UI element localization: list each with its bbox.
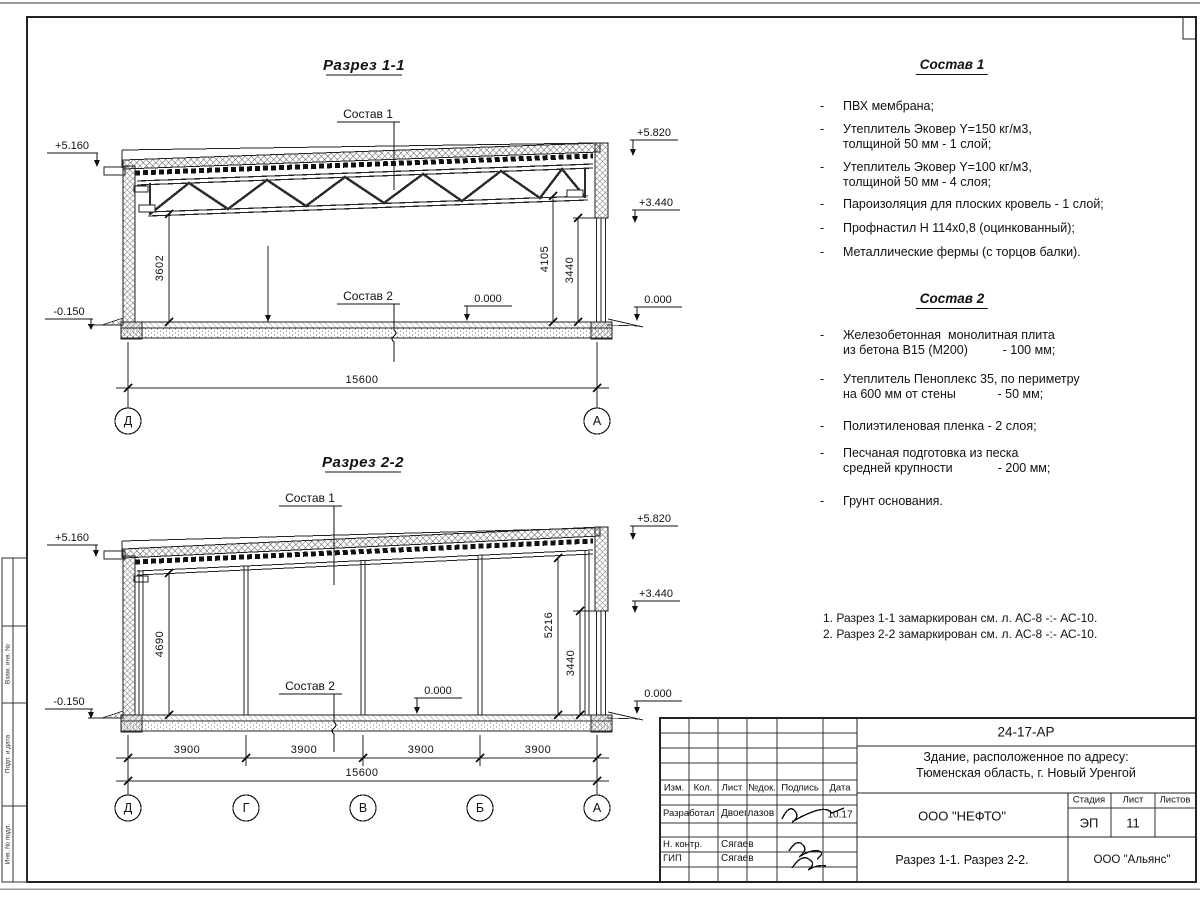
tb-subject: Разрез 1-1. Разрез 2-2. <box>895 853 1028 867</box>
section2-sostav1-label: Состав 1 <box>285 491 335 505</box>
section1-sostav2-label: Состав 2 <box>343 289 393 303</box>
tb-header-ndok: №док. <box>748 783 776 794</box>
tb-header-kol: Кол. <box>694 783 713 794</box>
sostav1-heading: Состав 1 <box>916 57 988 75</box>
dim-s2-span-1: 3900 <box>174 744 200 756</box>
dim-s2-opening-height: 3440 <box>565 650 577 676</box>
dim-s2-span-3: 3900 <box>408 744 434 756</box>
tb-doc-code: 24-17-АР <box>997 725 1054 740</box>
dim-s2-span-2: 3900 <box>291 744 317 756</box>
tb-role-gip: ГИП <box>663 853 682 864</box>
tb-sheets-label: Листов <box>1160 795 1191 806</box>
elev-s2-left-bottom: -0.150 <box>53 696 84 708</box>
elev-s1-left-bottom: -0.150 <box>53 306 84 318</box>
tb-header-podpis: Подпись <box>781 783 819 794</box>
tb-stage-value: ЭП <box>1080 816 1099 831</box>
tb-sheet-number: 11 <box>1126 816 1140 831</box>
elev-s2-left-top: +5.160 <box>55 532 89 544</box>
sostav1-item: -ПВХ мембрана; <box>843 99 934 114</box>
drawing-sheet: Взам. инв. № Подп. и дата Инв. № подл. Р… <box>0 0 1200 900</box>
margin-label-vzam: Взам. инв. № <box>5 644 12 684</box>
elev-s2-right-top: +5.820 <box>637 513 671 525</box>
sostav2-item: -Утеплитель Пеноплекс 35, по периметру н… <box>843 372 1080 402</box>
tb-object-line2: Тюменская область, г. Новый Уренгой <box>916 766 1136 780</box>
note-line: 2. Разрез 2-2 замаркирован см. л. АС-8 -… <box>823 627 1097 641</box>
elev-s1-floor-zero: 0.000 <box>474 293 502 305</box>
axis-s2-d: Д <box>124 801 132 815</box>
dim-s1-left-height: 3602 <box>154 255 166 281</box>
tb-name-dvoeglazov: Двоеглазов <box>721 808 774 819</box>
section2-title: Разрез 2-2 <box>322 454 404 471</box>
section1-title: Разрез 1-1 <box>323 57 405 74</box>
sostav2-heading: Состав 2 <box>916 291 988 309</box>
tb-company: ООО "НЕФТО" <box>918 809 1006 824</box>
tb-object-line1: Здание, расположенное по адресу: <box>923 750 1128 764</box>
tb-role-nkontr: Н. контр. <box>663 839 702 850</box>
elev-s2-right-mid: +3.440 <box>639 588 673 600</box>
section1-sostav1-label: Состав 1 <box>343 107 393 121</box>
axis-s2-b: Б <box>476 801 484 815</box>
sostav1-item: -Профнастил Н 114х0,8 (оцинкованный); <box>843 221 1075 236</box>
margin-label-inv: Инв. № подл. <box>5 824 12 865</box>
elev-s1-right-zero: 0.000 <box>644 294 672 306</box>
tb-role-razrabotal: Разработал <box>663 808 715 819</box>
sostav1-item: -Утеплитель Эковер Y=150 кг/м3, толщиной… <box>843 122 1032 152</box>
sostav2-item: -Песчаная подготовка из песка средней кр… <box>843 446 1050 476</box>
elev-s1-left-top: +5.160 <box>55 140 89 152</box>
sostav2-item: -Полиэтиленовая пленка - 2 слоя; <box>843 419 1037 434</box>
tb-sheet-label: Лист <box>1123 795 1144 806</box>
tb-header-izm: Изм. <box>664 783 684 794</box>
sostav2-item: -Грунт основания. <box>843 494 943 509</box>
axis-s2-a: А <box>593 801 601 815</box>
sostav1-item: -Металлические фермы (с торцов балки). <box>843 245 1081 260</box>
dim-s1-total-width: 15600 <box>345 374 378 386</box>
sostav2-item: -Железобетонная монолитная плита из бето… <box>843 328 1055 358</box>
margin-label-podp: Подп. и дата <box>5 735 12 773</box>
section2-sostav2-label: Состав 2 <box>285 679 335 693</box>
dim-s2-right-height: 5216 <box>543 612 555 638</box>
axis-s1-d: Д <box>124 414 132 428</box>
dim-s1-right-height: 4105 <box>539 246 551 272</box>
axis-s2-v: В <box>359 801 367 815</box>
tb-stage-label: Стадия <box>1073 795 1105 806</box>
tb-header-list: Лист <box>722 783 743 794</box>
note-line: 1. Разрез 1-1 замаркирован см. л. АС-8 -… <box>823 611 1097 625</box>
dim-s1-opening-height: 3440 <box>564 257 576 283</box>
dim-s2-span-4: 3900 <box>525 744 551 756</box>
sostav1-item: -Утеплитель Эковер Y=100 кг/м3, толщиной… <box>843 160 1032 190</box>
dim-s2-total-width: 15600 <box>345 767 378 779</box>
tb-name-syagaev-1: Сягаев <box>721 839 754 850</box>
elev-s1-right-mid: +3.440 <box>639 197 673 209</box>
dim-s2-left-height: 4690 <box>154 631 166 657</box>
tb-name-syagaev-2: Сягаев <box>721 853 754 864</box>
elev-s1-right-top: +5.820 <box>637 127 671 139</box>
elev-s2-floor-zero: 0.000 <box>424 685 452 697</box>
tb-header-data: Дата <box>829 783 850 794</box>
elev-s2-right-zero: 0.000 <box>644 688 672 700</box>
tb-contractor: ООО "Альянс" <box>1094 854 1171 866</box>
tb-date: 10.17 <box>827 810 852 821</box>
sostav1-item: -Пароизоляция для плоских кровель - 1 сл… <box>843 197 1104 212</box>
axis-s2-g: Г <box>243 801 250 815</box>
axis-s1-a: А <box>593 414 601 428</box>
